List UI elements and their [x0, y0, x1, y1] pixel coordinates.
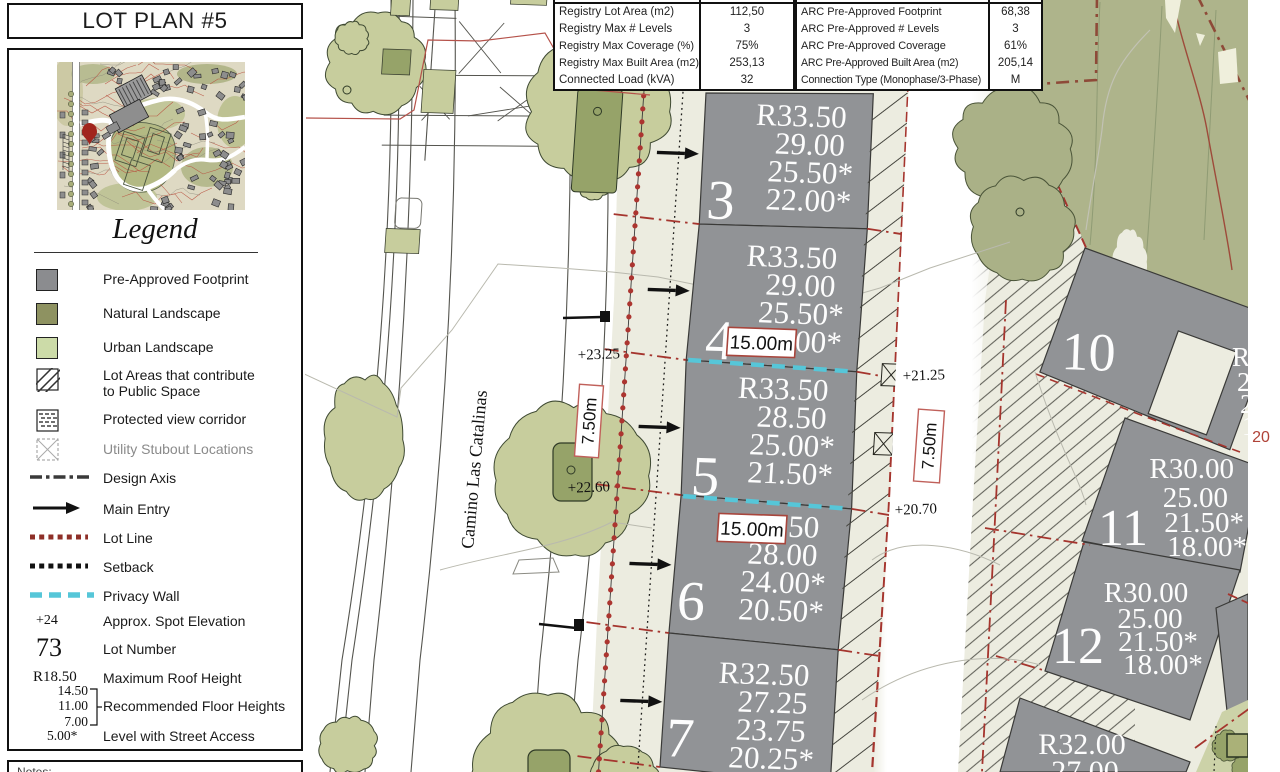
svg-text:18.00*: 18.00* — [1167, 531, 1247, 563]
svg-text:27.00: 27.00 — [1051, 755, 1119, 772]
svg-text:20.25*: 20.25* — [727, 739, 815, 772]
svg-text:20: 20 — [1252, 429, 1270, 446]
svg-text:+23.25: +23.25 — [577, 346, 620, 363]
svg-text:21.50*: 21.50* — [746, 454, 834, 492]
svg-text:+20.70: +20.70 — [894, 501, 937, 518]
svg-text:20.50*: 20.50* — [737, 591, 825, 629]
svg-text:5: 5 — [689, 445, 721, 508]
svg-text:7.50m: 7.50m — [578, 397, 600, 445]
svg-text:R30.00: R30.00 — [1149, 453, 1234, 485]
svg-text:18.00*: 18.00* — [1123, 649, 1203, 681]
svg-text:+22.60: +22.60 — [567, 479, 610, 496]
svg-text:15.00m: 15.00m — [729, 332, 794, 355]
svg-text:11: 11 — [1098, 500, 1148, 557]
svg-text:15.00m: 15.00m — [720, 518, 785, 541]
svg-text:12: 12 — [1052, 618, 1104, 675]
svg-text:22.00*: 22.00* — [765, 181, 853, 219]
svg-text:+21.25: +21.25 — [902, 367, 945, 384]
svg-text:6: 6 — [675, 570, 707, 633]
svg-text:10: 10 — [1061, 321, 1117, 383]
svg-text:7.50m: 7.50m — [918, 422, 940, 470]
svg-text:3: 3 — [705, 169, 737, 232]
svg-text:7: 7 — [664, 707, 696, 770]
